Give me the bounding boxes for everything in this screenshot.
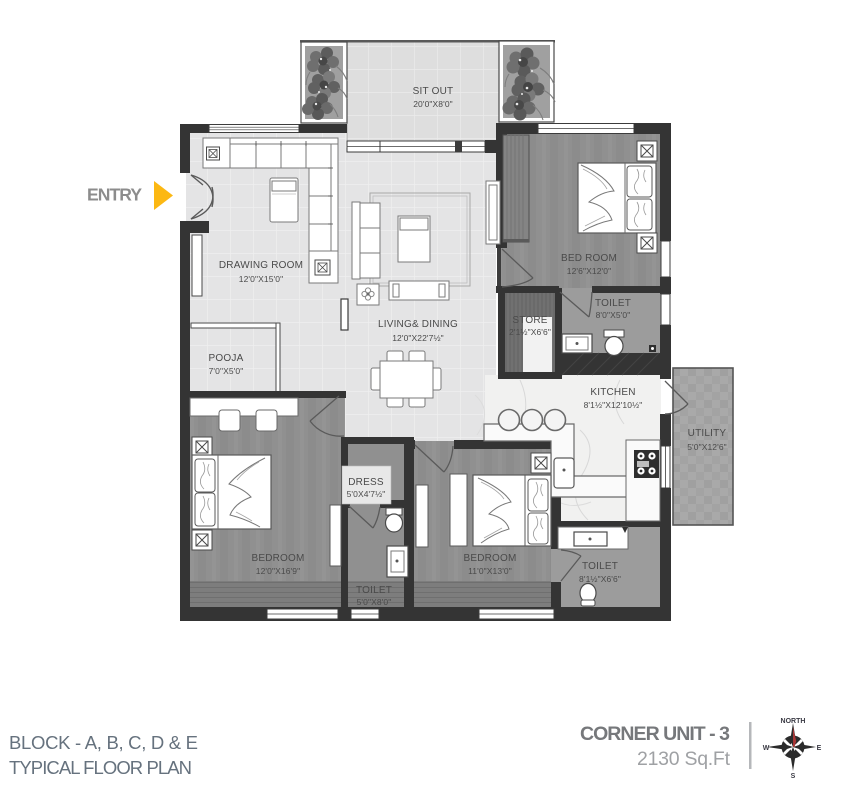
svg-text:BEDROOM: BEDROOM [251, 553, 304, 564]
svg-text:TOILET: TOILET [595, 298, 631, 309]
svg-text:12'0"X15'0": 12'0"X15'0" [239, 274, 283, 284]
svg-text:DRESS: DRESS [348, 477, 384, 488]
svg-text:12'6"X12'0": 12'6"X12'0" [567, 266, 611, 276]
svg-text:CORNER UNIT - 3: CORNER UNIT - 3 [580, 723, 730, 745]
svg-text:DRAWING ROOM: DRAWING ROOM [219, 260, 303, 271]
svg-text:8'1½"X12'10½": 8'1½"X12'10½" [584, 400, 643, 410]
svg-text:NORTH: NORTH [781, 718, 806, 725]
svg-text:11'0"X13'0": 11'0"X13'0" [468, 566, 512, 576]
svg-text:BED ROOM: BED ROOM [561, 253, 617, 264]
svg-text:TYPICAL FLOOR PLAN: TYPICAL FLOOR PLAN [9, 757, 192, 778]
svg-text:LIVING& DINING: LIVING& DINING [378, 319, 458, 330]
svg-text:STORE: STORE [512, 315, 547, 326]
svg-text:TOILET: TOILET [582, 561, 618, 572]
svg-text:BEDROOM: BEDROOM [463, 553, 516, 564]
svg-text:20'0"X8'0": 20'0"X8'0" [413, 99, 453, 109]
svg-text:W: W [763, 745, 770, 752]
svg-text:SIT OUT: SIT OUT [413, 86, 454, 97]
svg-text:12'0"X22'7½": 12'0"X22'7½" [392, 333, 444, 343]
svg-text:5'0X4'7½": 5'0X4'7½" [347, 489, 386, 499]
svg-text:8'1½"X6'6": 8'1½"X6'6" [579, 574, 621, 584]
svg-text:2'1½"X6'6": 2'1½"X6'6" [509, 327, 551, 337]
svg-text:POOJA: POOJA [209, 353, 244, 364]
svg-text:S: S [791, 773, 796, 780]
svg-text:E: E [817, 745, 822, 752]
svg-text:7'0"X5'0": 7'0"X5'0" [209, 366, 244, 376]
svg-text:12'0"X16'9": 12'0"X16'9" [256, 566, 300, 576]
svg-text:UTILITY: UTILITY [688, 428, 727, 439]
svg-text:8'0"X5'0": 8'0"X5'0" [596, 310, 631, 320]
svg-text:ENTRY: ENTRY [87, 185, 143, 205]
svg-text:5'0"X8'0": 5'0"X8'0" [357, 597, 392, 607]
svg-text:KITCHEN: KITCHEN [590, 387, 635, 398]
svg-text:TOILET: TOILET [356, 585, 392, 596]
svg-text:5'0"X12'6": 5'0"X12'6" [687, 442, 727, 452]
svg-text:BLOCK - A, B, C, D & E: BLOCK - A, B, C, D & E [9, 732, 198, 753]
svg-text:2130 Sq.Ft: 2130 Sq.Ft [637, 748, 731, 770]
